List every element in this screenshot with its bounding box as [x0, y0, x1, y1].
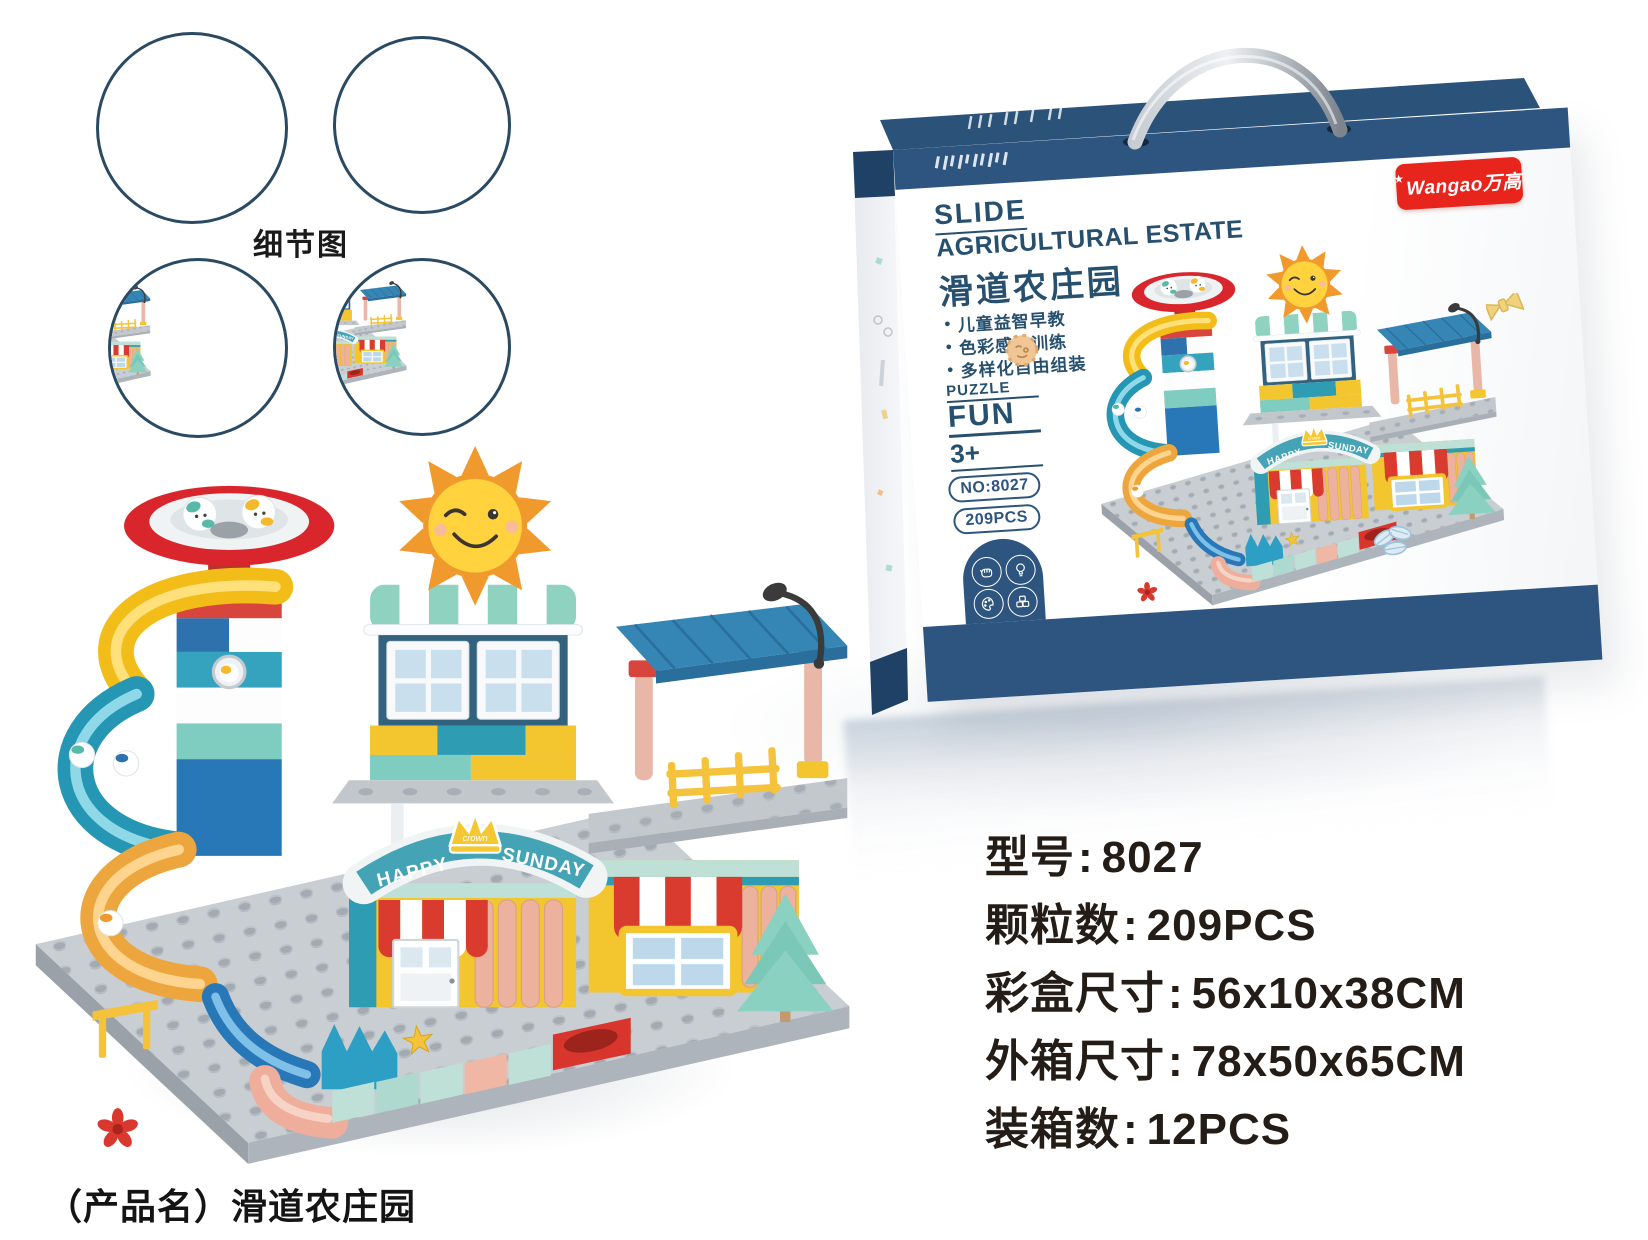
spec-row-model: 型号:8027: [985, 824, 1466, 892]
box-3d-chrome: [820, 20, 1590, 780]
detail-photo-sun-roof: [108, 258, 288, 438]
product-name-caption: （产品名）滑道农庄园: [46, 1178, 416, 1230]
spec-row-carton-qty: 装箱数:12PCS: [985, 1096, 1466, 1164]
spec-row-pieces: 颗粒数:209PCS: [985, 892, 1466, 960]
box-side-panel: [853, 150, 908, 715]
spec-row-color-box-size: 彩盒尺寸:56x10x38CM: [985, 960, 1466, 1028]
detail-photo-sunday-sign: [333, 36, 511, 214]
box-side-top-navy: [853, 150, 895, 198]
main-product-photo: [0, 408, 862, 1165]
specs-block: 型号:8027 颗粒数:209PCS 彩盒尺寸:56x10x38CM 外箱尺寸:…: [985, 824, 1466, 1164]
product-listing-image: HAPPY SUNDAY crown: [0, 0, 1648, 1240]
detail-section-label: 细节图: [238, 220, 364, 264]
box-top-plane: [880, 78, 1540, 150]
detail-photo-funnel-balls: [333, 258, 511, 436]
spec-row-carton-size: 外箱尺寸:78x50x65CM: [985, 1028, 1466, 1096]
detail-photo-house-front: [96, 32, 288, 224]
